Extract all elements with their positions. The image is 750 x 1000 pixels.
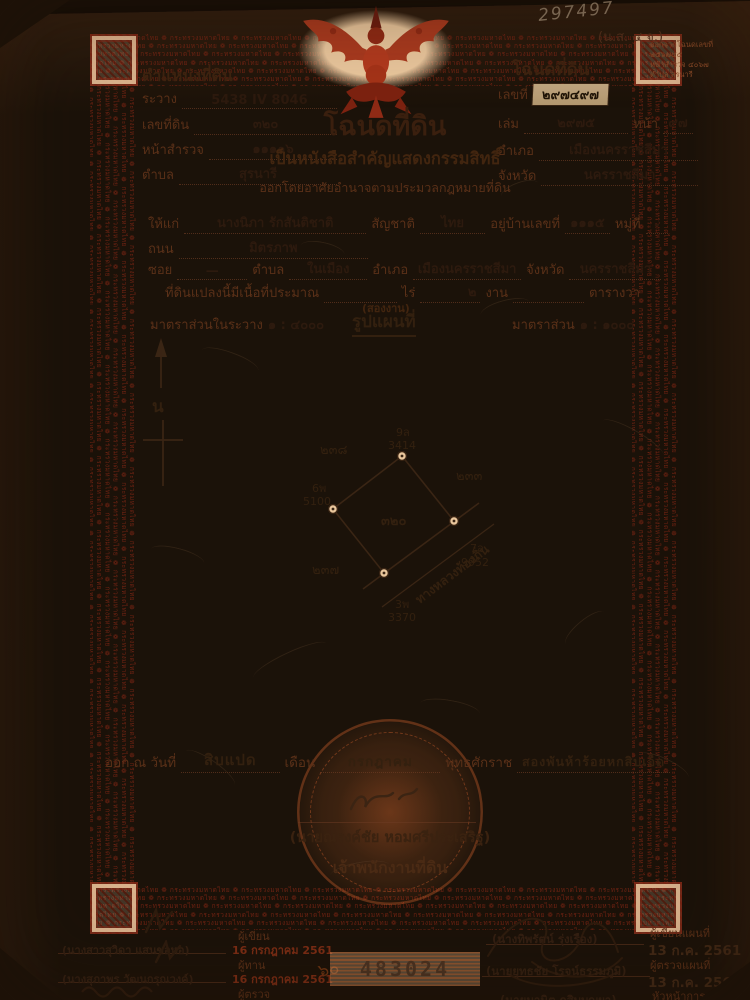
corner-bottom-length: 3370 — [388, 611, 416, 624]
corner-top-length: 3414 — [388, 439, 416, 452]
deed-province-value: นครราชสีมา — [541, 164, 698, 186]
address-value: ๑๑๑๕ — [565, 212, 610, 234]
grantee-tambon-value: ในเมือง — [289, 258, 367, 280]
corner-bottom-id: 3พ — [395, 598, 409, 611]
position-tambon-label: ตำบล — [142, 164, 174, 185]
border-corner-ornament — [90, 34, 138, 86]
officer-name: (นายณรงค์ชัย หอมศรีประเสริฐ) — [268, 826, 512, 849]
examiner-role: ผู้ตรวจ — [238, 985, 270, 1000]
north-letter: น — [152, 397, 164, 417]
corner-left-id: 6พ — [312, 482, 326, 495]
year-value: สองพันห้าร้อยหกสิบเอ็ด — [517, 752, 670, 773]
grantee-amphoe-label: อำเภอ — [372, 259, 408, 280]
map-examiner-name: (นายยุทธชัย โรจน์ธรรมภูมิ) — [486, 963, 627, 981]
corner-note: ออกจากโฉนดเลขที่ ๒๕๖๗๔๕ หน้าสำรวจ ๔๐๖๗ ต… — [650, 40, 748, 80]
parcel-number: ๓๒๐ — [381, 514, 406, 529]
grantee-name: นางนิภา รักสันติชาติ — [184, 212, 366, 234]
serial-number: 483024 — [360, 957, 450, 981]
scale-in-sheet-label: มาตราส่วนในระวาง — [150, 314, 263, 335]
grantee-province-value: นครราชสีมา — [569, 258, 661, 280]
grantee-label: ให้แก่ — [148, 213, 179, 234]
grantee-amphoe-value: เมืองนครราชสีมา — [413, 258, 521, 280]
deed-subtitle2: ออกโดยอาศัยอำนาจตามประมวลกฎหมายที่ดิน — [210, 178, 560, 198]
deed-no-label: เลขที่ — [498, 84, 528, 105]
section-head-name: (นายมานิต กสิบบุญผา) — [500, 992, 617, 1000]
neighbor-parcel-237: ๒๓๗ — [312, 563, 339, 578]
deed-amphoe-value: เมืองนครราชสีมา — [539, 139, 698, 161]
wa-label: ตารางวา — [589, 282, 640, 303]
road-value: มิตรภาพ — [179, 237, 368, 259]
officer-signature — [345, 785, 425, 817]
neighbor-parcel-233: ๒๓๓ — [456, 469, 482, 484]
writer-signature — [142, 908, 182, 936]
era-label: พุทธศักราช — [445, 751, 512, 773]
soi-value: — — [177, 264, 247, 280]
grantee-tambon-label: ตำบล — [252, 259, 284, 280]
survey-sheet-label: ระวาง — [142, 88, 177, 109]
deed-block-title: โฉนดที่ดิน — [512, 56, 589, 83]
road-label: ถนน — [148, 238, 174, 259]
photo-of-land-deed: ❁ กระทรวงมหาดไทย ❁ กระทรวงมหาดไทย ❁ กระท… — [0, 0, 750, 1000]
month-label: เดือน — [285, 751, 316, 773]
corner-note-line: ตำบล สุรนารี — [650, 70, 748, 80]
checker-signature — [152, 940, 192, 966]
survey-page-label: หน้าสำรวจ — [142, 139, 204, 160]
nationality-value: ไทย — [420, 212, 485, 234]
deed-page-value: ๙๗ — [663, 112, 693, 134]
road-name: ทางหลวงท้องถิ่น — [412, 540, 493, 606]
deed-main-title: โฉนดที่ดิน — [225, 104, 545, 147]
issued-prefix: ออก ณ วันที่ — [105, 751, 176, 773]
corner-left-length: 5100 — [303, 495, 331, 508]
deed-no-value: ๒๙๗๔๙๗ — [532, 84, 608, 105]
month-value: กรกฎาคม — [320, 750, 440, 773]
scale-value: ๑ : ๑๐๐๐ — [580, 314, 635, 335]
issued-day-stamp: สิบแปด — [181, 748, 279, 773]
corner-note-line: หน้าสำรวจ ๔๐๖๗ — [650, 60, 748, 70]
position-block-title: ตำแหน่งที่ดิน — [142, 64, 233, 89]
wa-blank — [513, 287, 584, 303]
scale-in-sheet-value: ๑ : ๔๐๐๐ — [268, 314, 324, 335]
parcel-no-label: เลขที่ดิน — [142, 114, 189, 135]
map-writer-name: (นางทิพรัตน์ รุ่งเรือง) — [492, 931, 598, 949]
deed-subtitle: เป็นหนังสือสำคัญแสดงกรรมสิทธิ์ — [210, 146, 560, 172]
serial-number-band: 483024 — [330, 952, 480, 986]
area-prefix: ที่ดินแปลงนี้มีเนื้อที่ประมาณ — [165, 282, 319, 303]
map-title: รูปแผนที่ — [352, 308, 416, 337]
nationality-label: สัญชาติ — [371, 213, 415, 234]
north-arrow: น — [135, 336, 187, 486]
parcel-sketch: ๒๓๘ 9ล 3414 ๒๓๓ 6พ 5100 ๓๒๐ 7ล 9952 ๒๓๗ … — [298, 418, 523, 630]
corner-note-line: ๒๕๖๗๔๕ — [650, 50, 748, 60]
moo-label: หมู่ที่ — [615, 213, 641, 234]
corner-note-line: ออกจากโฉนดเลขที่ — [650, 40, 748, 50]
examiner-name: (นาย…) — [70, 996, 111, 1000]
officer-title: เจ้าพนักงานที่ดิน — [268, 856, 512, 881]
neighbor-parcel-238: ๒๓๘ — [320, 443, 348, 458]
deed-page-label: หน้า — [633, 113, 658, 134]
ngan-label: งาน — [485, 282, 508, 303]
grantee-province-label: จังหวัด — [526, 259, 564, 280]
soi-label: ซอย — [148, 259, 172, 280]
ngan-value: ๒ — [420, 281, 480, 303]
form-code: (น.ส. ๔ จ.) — [598, 26, 663, 47]
moo-value: - — [646, 218, 668, 234]
corner-top-id: 9ล — [396, 426, 410, 439]
scale-label: มาตราส่วน — [512, 314, 575, 335]
address-label: อยู่บ้านเลขที่ — [490, 213, 560, 234]
border-corner-ornament — [90, 882, 138, 934]
